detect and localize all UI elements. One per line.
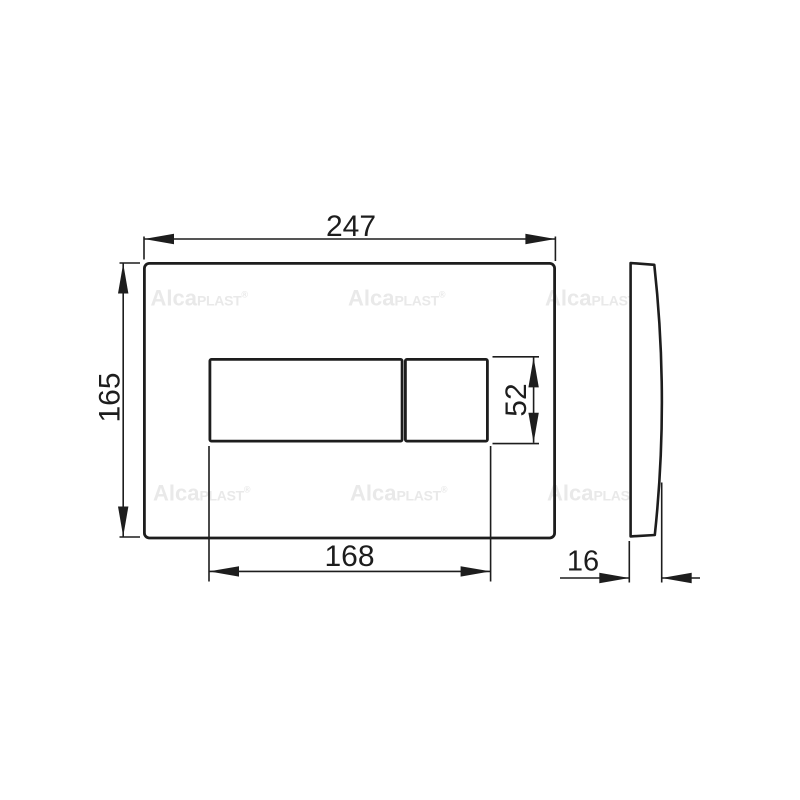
svg-text:16: 16 — [567, 546, 599, 578]
svg-text:52: 52 — [500, 383, 533, 416]
svg-text:247: 247 — [326, 210, 376, 243]
svg-text:168: 168 — [324, 540, 374, 573]
svg-text:165: 165 — [94, 372, 127, 422]
